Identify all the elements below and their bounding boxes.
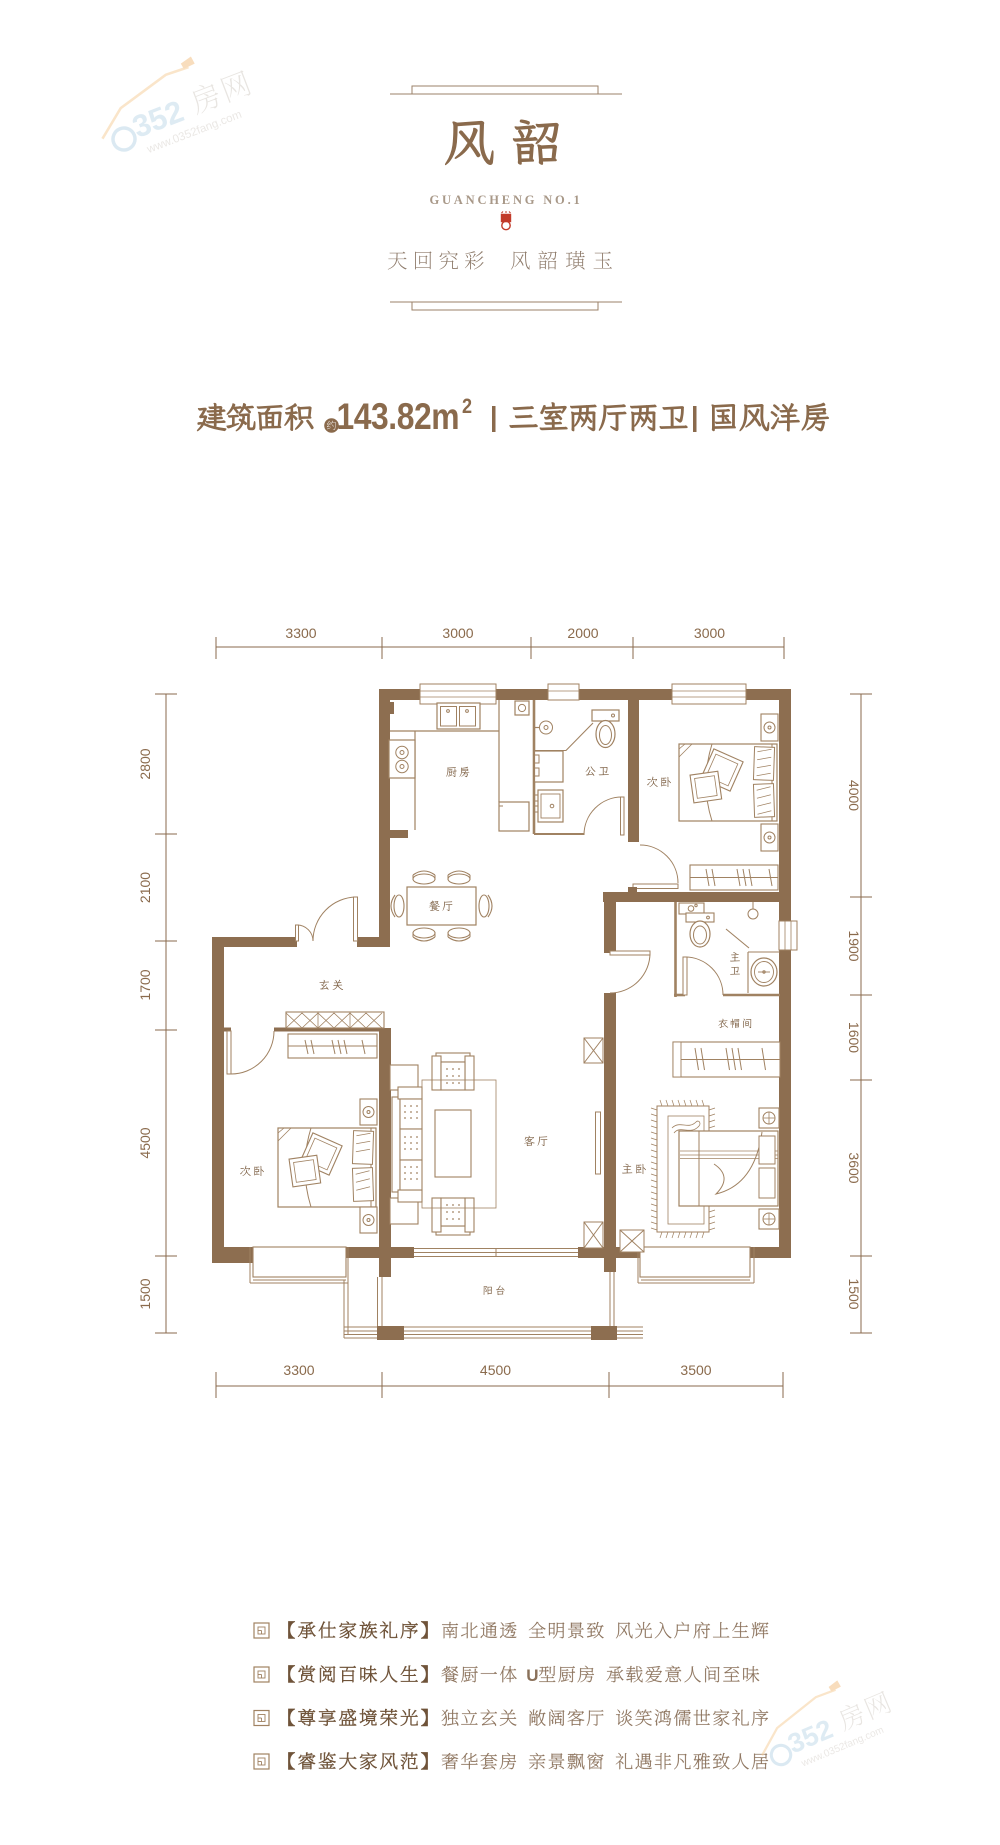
svg-text:4500: 4500 [137,1127,153,1158]
svg-text:1500: 1500 [846,1278,862,1309]
svg-text:4500: 4500 [480,1362,511,1378]
svg-text:1500: 1500 [137,1278,153,1309]
svg-text:3600: 3600 [846,1152,862,1183]
svg-text:2000: 2000 [567,625,598,641]
svg-text:U: U [526,1666,538,1685]
svg-text:1600: 1600 [846,1022,862,1053]
svg-text:3000: 3000 [694,625,725,641]
svg-text:3300: 3300 [283,1362,314,1378]
svg-text:143.82m: 143.82m [337,397,460,438]
svg-text:2: 2 [462,395,472,419]
svg-text:1700: 1700 [137,969,153,1000]
svg-text:3500: 3500 [680,1362,711,1378]
svg-text:2800: 2800 [137,748,153,779]
svg-text:4000: 4000 [846,780,862,811]
svg-text:2100: 2100 [137,872,153,903]
svg-text:3000: 3000 [442,625,473,641]
svg-text:1900: 1900 [846,930,862,961]
svg-text:3300: 3300 [285,625,316,641]
svg-text:GUANCHENG NO.1: GUANCHENG NO.1 [429,193,582,207]
